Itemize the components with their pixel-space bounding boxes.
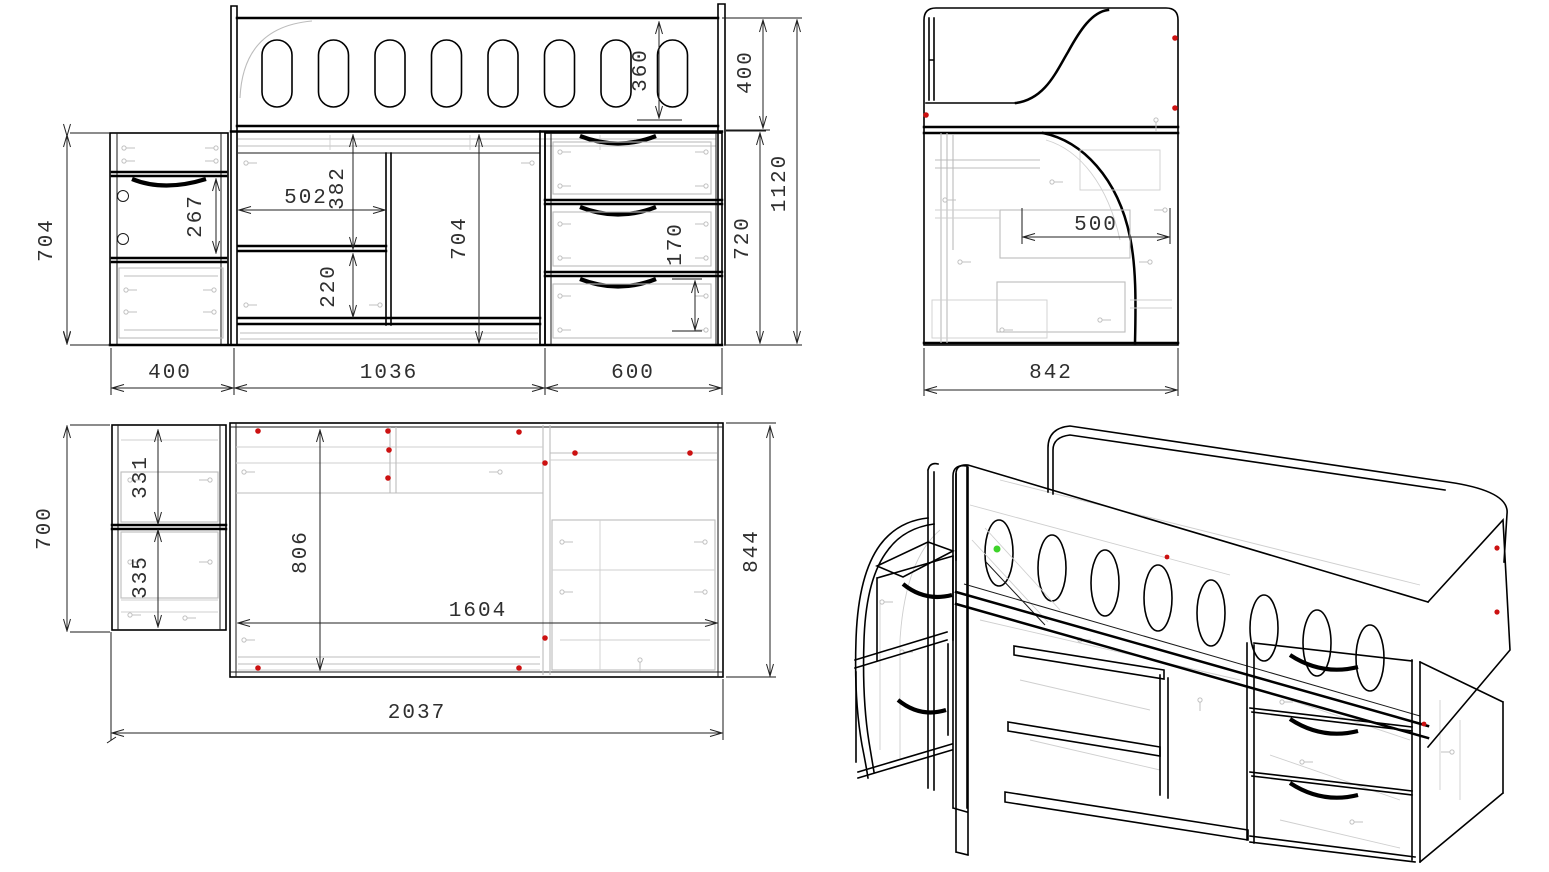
iso-bed-platform bbox=[956, 584, 1428, 738]
iso-steps-unit bbox=[855, 464, 953, 790]
dim-170: 170 bbox=[665, 222, 688, 266]
plan-view: 700 331 335 806 1604 844 2037 bbox=[34, 423, 776, 743]
dim-382: 382 bbox=[327, 166, 350, 210]
dim-400-top: 400 bbox=[735, 50, 758, 94]
dim-720: 720 bbox=[732, 216, 755, 260]
rail-oval-cutouts bbox=[262, 40, 688, 107]
dim-806: 806 bbox=[290, 530, 313, 574]
plan-fastener-markers bbox=[255, 428, 693, 671]
dim-331: 331 bbox=[130, 455, 153, 499]
dim-1604: 1604 bbox=[449, 600, 507, 623]
dim-600: 600 bbox=[611, 362, 655, 385]
blueprint-canvas: 704 267 502 382 220 704 170 360 400 720 … bbox=[0, 0, 1549, 872]
plan-dimensions: 700 331 335 806 1604 844 2037 bbox=[34, 423, 776, 743]
iso-drawer-unit bbox=[1247, 643, 1503, 862]
assembly-marker-green bbox=[994, 546, 1001, 553]
dim-2037: 2037 bbox=[388, 702, 446, 725]
dim-400-bottom: 400 bbox=[148, 362, 192, 385]
iso-headboard-panel bbox=[1048, 426, 1507, 562]
isometric-view bbox=[855, 426, 1510, 862]
dim-500: 500 bbox=[1074, 214, 1118, 237]
dim-1036: 1036 bbox=[360, 362, 418, 385]
blueprint-page: 704 267 502 382 220 704 170 360 400 720 … bbox=[0, 0, 1549, 872]
side-elevation-view: 500 842 bbox=[923, 8, 1178, 396]
dim-844: 844 bbox=[741, 529, 764, 573]
dim-335: 335 bbox=[130, 555, 153, 599]
dim-704-left: 704 bbox=[36, 218, 59, 262]
dim-267: 267 bbox=[185, 194, 208, 238]
dim-704-mid: 704 bbox=[449, 216, 472, 260]
desk-section-front bbox=[238, 131, 545, 345]
dim-360: 360 bbox=[630, 48, 653, 92]
dim-220: 220 bbox=[318, 264, 341, 308]
fastener-marker-red bbox=[923, 112, 929, 118]
dim-1120: 1120 bbox=[769, 154, 792, 212]
fastener-marker-red bbox=[1172, 35, 1178, 41]
side-dimensions: 500 842 bbox=[924, 208, 1178, 396]
fastener-marker-red bbox=[1172, 105, 1178, 111]
dim-502: 502 bbox=[284, 187, 328, 210]
front-elevation-view: 704 267 502 382 220 704 170 360 400 720 … bbox=[36, 4, 802, 395]
dim-842: 842 bbox=[1029, 362, 1073, 385]
steps-cabinet-front bbox=[110, 133, 228, 345]
iso-ladder-panel bbox=[953, 466, 967, 812]
dim-700: 700 bbox=[34, 506, 57, 550]
